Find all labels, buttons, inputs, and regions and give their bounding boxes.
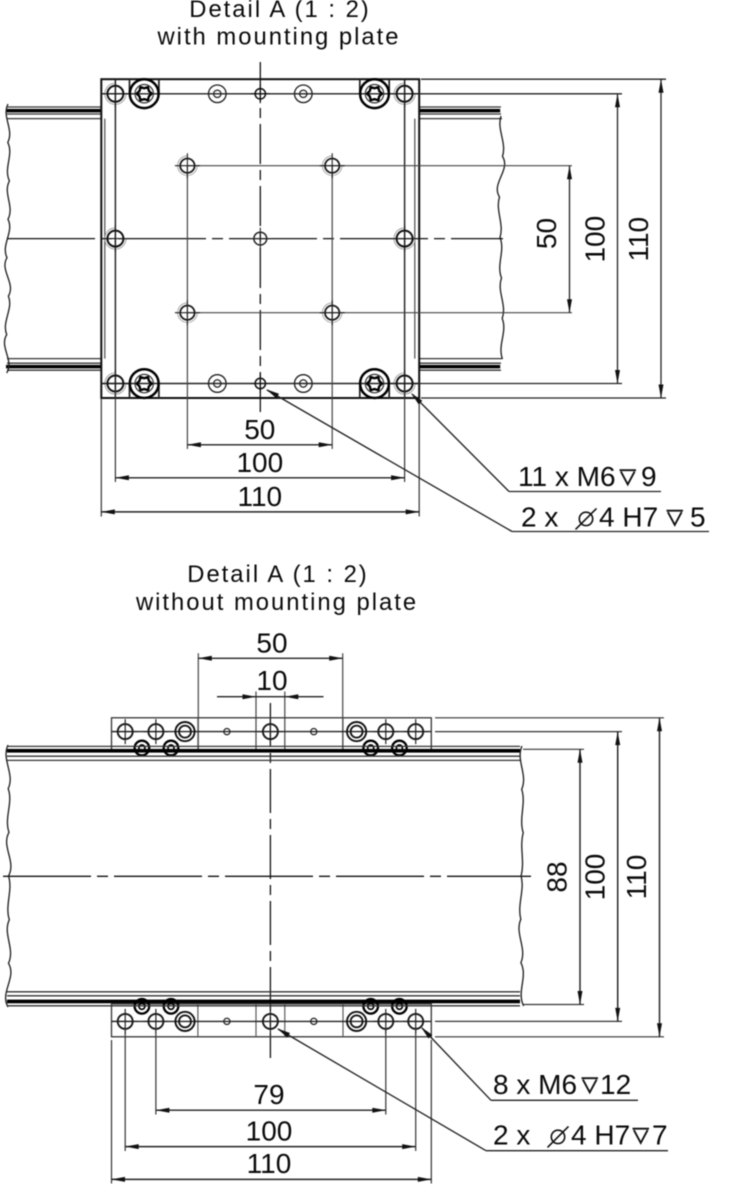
svg-text:11 x M6: 11 x M6 xyxy=(518,461,616,492)
svg-text:7: 7 xyxy=(652,1120,668,1151)
svg-text:50: 50 xyxy=(256,628,287,659)
svg-text:Detail A (1 : 2): Detail A (1 : 2) xyxy=(187,561,368,588)
svg-text:88: 88 xyxy=(542,861,573,892)
svg-text:50: 50 xyxy=(244,414,275,445)
svg-text:100: 100 xyxy=(580,216,611,263)
svg-text:100: 100 xyxy=(580,854,611,901)
svg-text:12: 12 xyxy=(600,1069,631,1100)
svg-text:100: 100 xyxy=(236,447,283,478)
svg-text:110: 110 xyxy=(247,1148,292,1179)
svg-text:2 x: 2 x xyxy=(493,1120,530,1151)
svg-text:110: 110 xyxy=(621,855,652,900)
svg-text:50: 50 xyxy=(531,218,562,249)
svg-text:79: 79 xyxy=(253,1079,284,1110)
svg-text:8 x M6: 8 x M6 xyxy=(493,1069,577,1100)
svg-text:5: 5 xyxy=(690,502,706,533)
svg-text:Detail A (1 : 2): Detail A (1 : 2) xyxy=(189,0,370,23)
svg-text:100: 100 xyxy=(246,1116,293,1147)
svg-text:without mounting plate: without mounting plate xyxy=(135,589,418,616)
svg-text:110: 110 xyxy=(237,481,282,512)
svg-text:4 H7: 4 H7 xyxy=(571,1120,630,1151)
svg-text:10: 10 xyxy=(256,665,287,696)
svg-text:110: 110 xyxy=(623,217,654,262)
svg-text:2 x: 2 x xyxy=(521,502,558,533)
svg-text:4 H7: 4 H7 xyxy=(599,502,658,533)
svg-text:with mounting plate: with mounting plate xyxy=(156,24,400,51)
svg-text:9: 9 xyxy=(641,461,657,492)
